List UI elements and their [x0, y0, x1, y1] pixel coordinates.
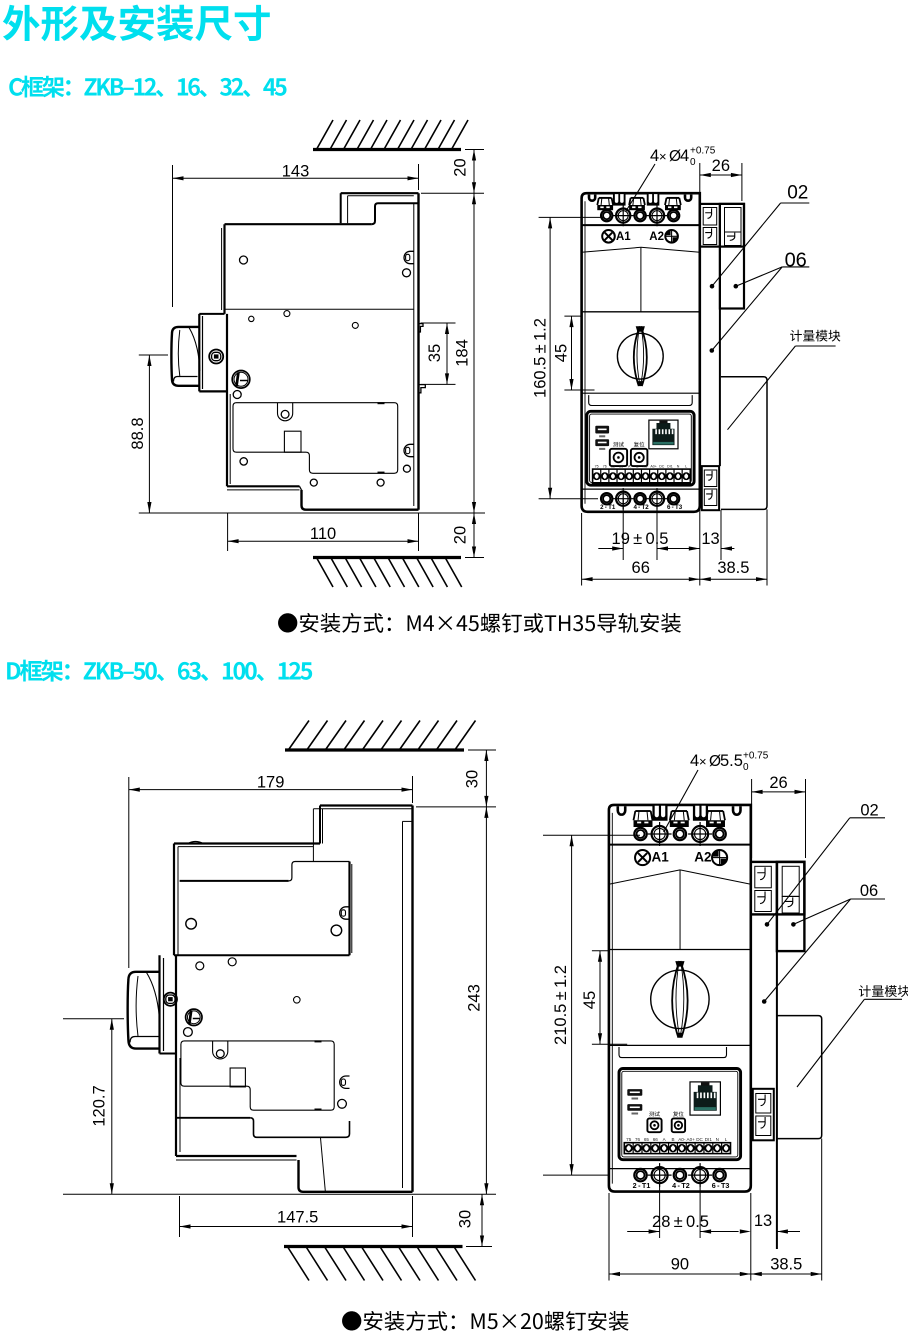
- svg-text:4: 4: [680, 147, 689, 165]
- svg-text:DI1: DI1: [705, 1137, 713, 1142]
- svg-text:26: 26: [769, 774, 787, 792]
- svg-text:×: ×: [659, 149, 667, 164]
- svg-text:243: 243: [466, 984, 484, 1012]
- svg-text:4: 4: [690, 752, 699, 770]
- svg-text:L: L: [725, 1137, 728, 1142]
- svg-text:0: 0: [743, 762, 749, 773]
- svg-text:13: 13: [701, 530, 719, 548]
- svg-text:19 ± 0.5: 19 ± 0.5: [612, 530, 669, 548]
- svg-text:26: 26: [712, 157, 730, 175]
- svg-text:A0-: A0-: [678, 1137, 686, 1142]
- svg-text:B: B: [671, 1137, 674, 1142]
- svg-text:A1: A1: [652, 849, 670, 864]
- svg-text:20: 20: [452, 158, 470, 176]
- svg-text:147.5: 147.5: [277, 1208, 318, 1226]
- svg-text:160.5 ± 1.2: 160.5 ± 1.2: [532, 318, 550, 398]
- svg-text:+0.75: +0.75: [743, 751, 769, 762]
- svg-text:28 ± 0.5: 28 ± 0.5: [652, 1213, 709, 1231]
- svg-text:DC: DC: [659, 465, 665, 469]
- svg-text:06: 06: [785, 250, 807, 272]
- svg-text:30: 30: [464, 770, 482, 788]
- svg-text:45: 45: [581, 991, 599, 1009]
- svg-text:4: 4: [650, 147, 659, 165]
- svg-text:38.5: 38.5: [717, 559, 749, 577]
- svg-text:20: 20: [452, 526, 470, 544]
- svg-text:02: 02: [860, 802, 878, 820]
- svg-text:0: 0: [690, 157, 696, 168]
- svg-text:38.5: 38.5: [770, 1255, 802, 1273]
- svg-text:4 - T2: 4 - T2: [672, 1181, 690, 1190]
- svg-text:2 - T1: 2 - T1: [600, 504, 616, 511]
- svg-text:75: 75: [626, 1137, 632, 1142]
- svg-text:N: N: [716, 1137, 719, 1142]
- svg-text:N: N: [677, 465, 680, 469]
- svg-text:L: L: [685, 465, 687, 469]
- svg-text:90: 90: [671, 1255, 689, 1273]
- svg-text:143: 143: [282, 163, 310, 181]
- svg-text:179: 179: [257, 773, 285, 791]
- svg-text:6 - T3: 6 - T3: [712, 1181, 730, 1190]
- svg-text:13: 13: [754, 1212, 772, 1230]
- svg-text:210.5 ± 1.2: 210.5 ± 1.2: [552, 965, 570, 1045]
- svg-text:A0-: A0-: [643, 465, 649, 469]
- svg-text:A0+: A0+: [687, 1137, 696, 1142]
- svg-text:45: 45: [553, 344, 571, 362]
- svg-text:76: 76: [635, 1137, 641, 1142]
- svg-text:65: 65: [644, 1137, 650, 1142]
- svg-text:A2: A2: [694, 849, 711, 864]
- svg-text:DI1: DI1: [667, 465, 673, 469]
- svg-text:A2: A2: [649, 231, 664, 243]
- svg-text:+0.75: +0.75: [690, 146, 716, 157]
- svg-text:06: 06: [860, 882, 878, 900]
- svg-text:66: 66: [632, 559, 650, 577]
- svg-text:2 - T1: 2 - T1: [633, 1181, 651, 1190]
- svg-text:×: ×: [699, 754, 707, 769]
- svg-text:88.8: 88.8: [129, 417, 147, 449]
- svg-text:A1: A1: [616, 231, 631, 243]
- svg-text:110: 110: [310, 525, 336, 543]
- svg-text:184: 184: [454, 339, 472, 367]
- svg-text:66: 66: [619, 465, 623, 469]
- svg-text:4 - T2: 4 - T2: [633, 504, 649, 511]
- svg-text:76: 76: [603, 465, 607, 469]
- svg-text:120.7: 120.7: [91, 1085, 109, 1126]
- svg-text:35: 35: [426, 344, 444, 362]
- svg-text:02: 02: [787, 183, 808, 204]
- svg-text:66: 66: [653, 1137, 659, 1142]
- svg-text:6 - T3: 6 - T3: [667, 504, 683, 511]
- svg-text:5.5: 5.5: [720, 752, 743, 770]
- svg-text:75: 75: [595, 465, 599, 469]
- svg-text:DC: DC: [696, 1137, 703, 1142]
- svg-text:A0+: A0+: [650, 465, 657, 469]
- svg-text:30: 30: [457, 1210, 475, 1228]
- svg-text:65: 65: [611, 465, 615, 469]
